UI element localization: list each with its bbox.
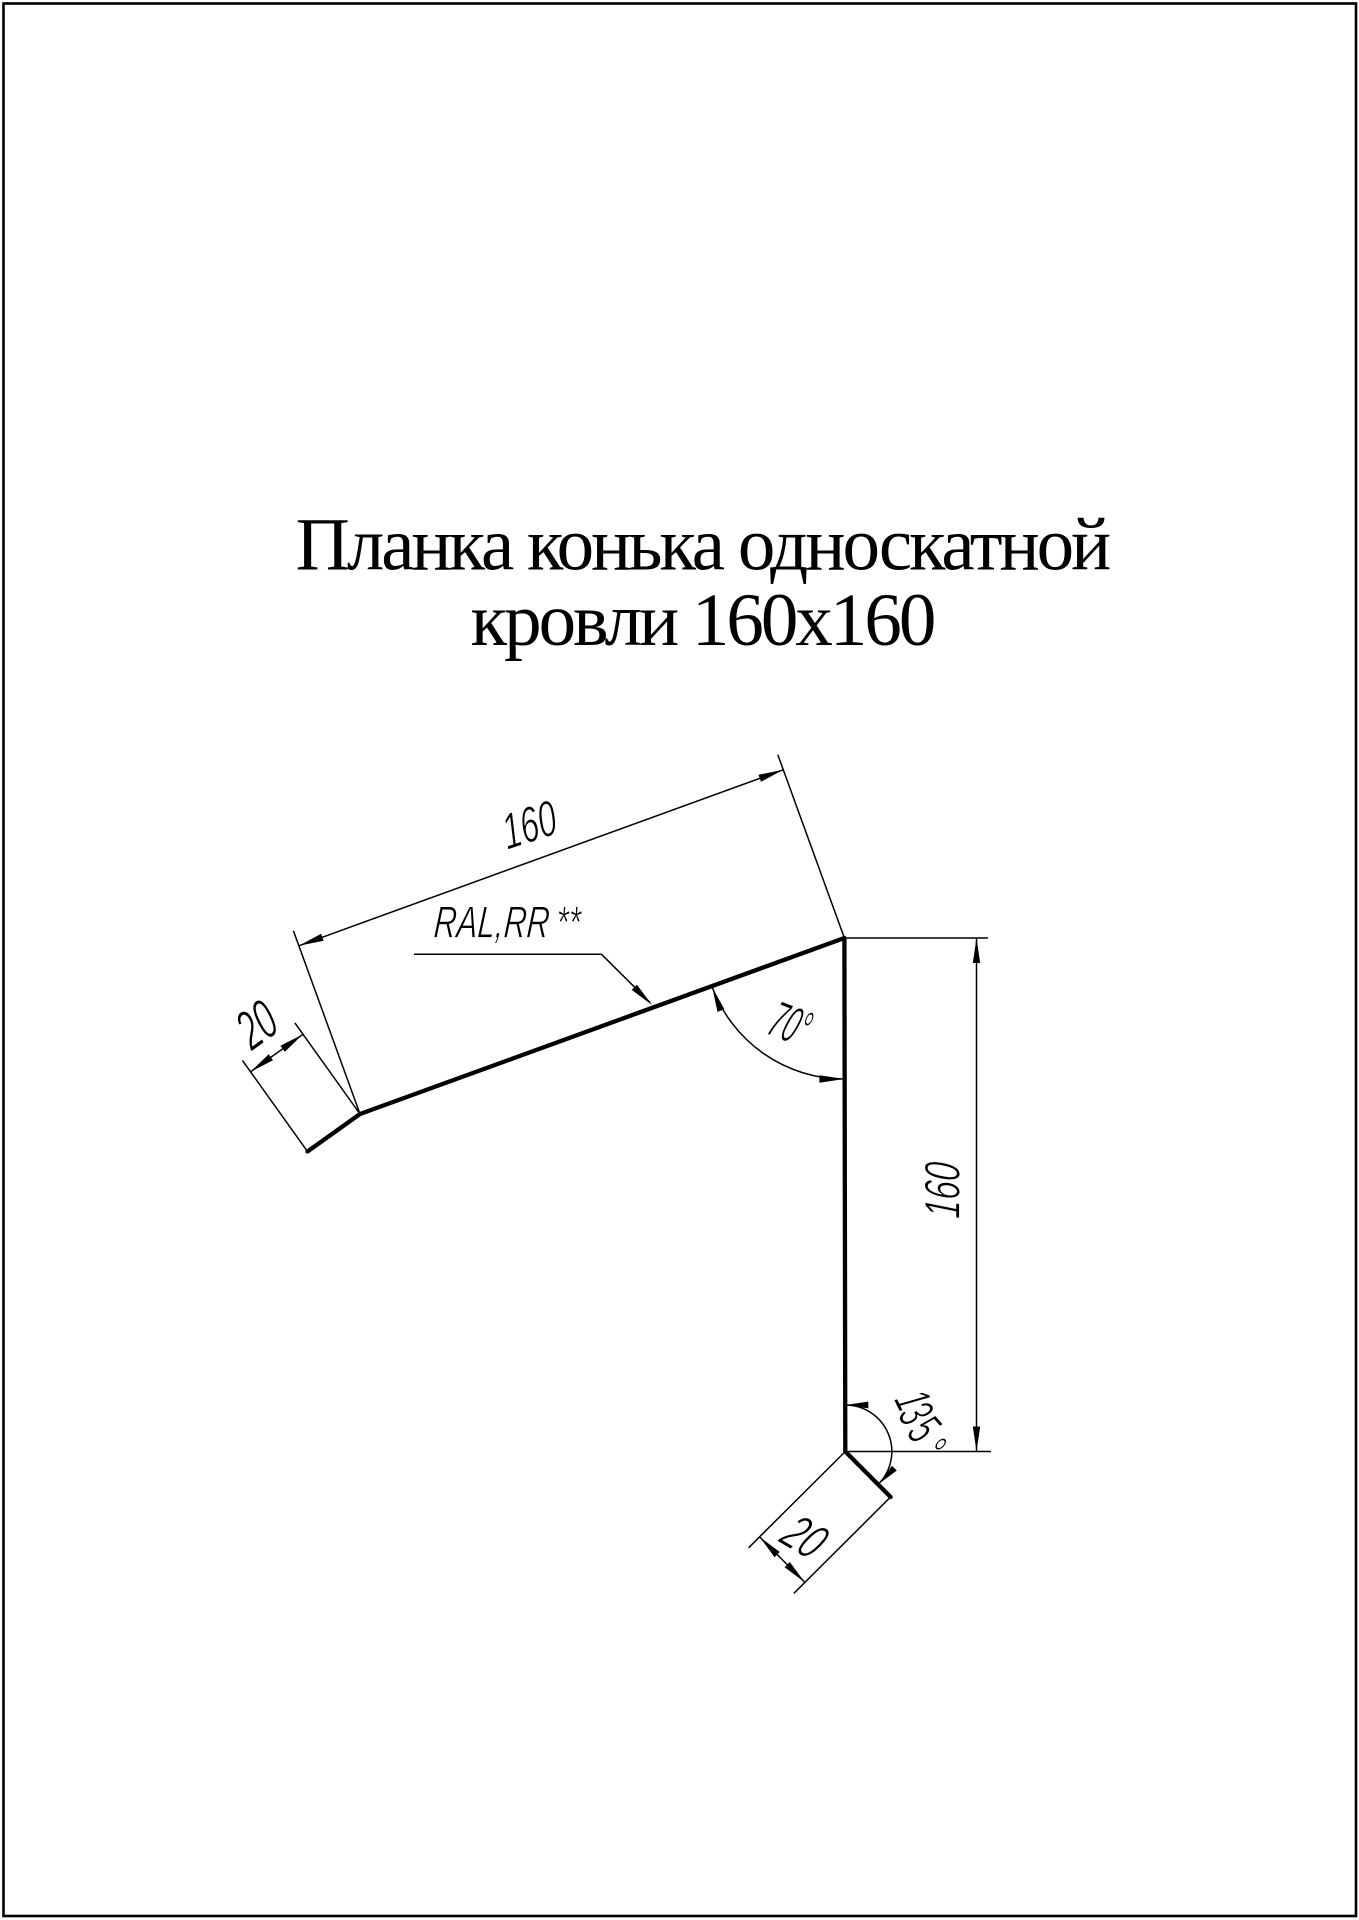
svg-text:RAL,RR **: RAL,RR ** bbox=[432, 898, 583, 948]
svg-text:Планка конька односкатной: Планка конька односкатной bbox=[296, 504, 1111, 587]
svg-text:кровли 160x160: кровли 160x160 bbox=[471, 579, 934, 662]
svg-text:160: 160 bbox=[915, 1160, 971, 1220]
